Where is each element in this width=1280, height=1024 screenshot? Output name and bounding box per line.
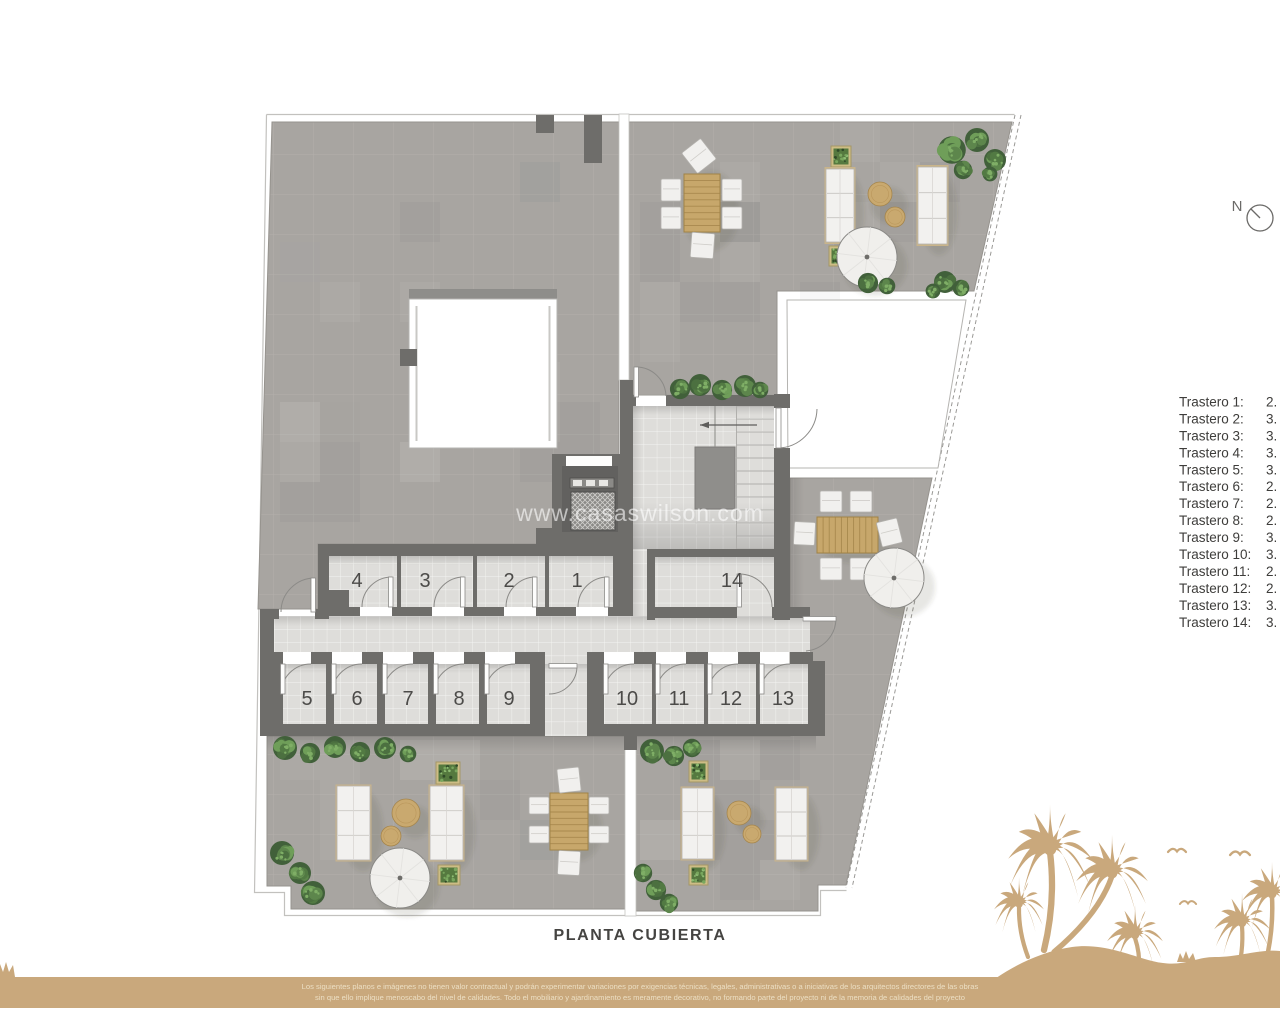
- svg-text:Trastero 5:: Trastero 5:: [1179, 462, 1244, 477]
- svg-text:Trastero 6:: Trastero 6:: [1179, 479, 1244, 494]
- svg-text:Trastero 14:: Trastero 14:: [1179, 615, 1251, 630]
- svg-text:www.casaswilson.com: www.casaswilson.com: [515, 500, 764, 526]
- svg-text:Trastero 9:: Trastero 9:: [1179, 530, 1244, 545]
- svg-text:5: 5: [301, 688, 312, 710]
- svg-text:3.: 3.: [1266, 615, 1277, 630]
- svg-text:6: 6: [351, 688, 362, 710]
- svg-text:Trastero 8:: Trastero 8:: [1179, 513, 1244, 528]
- svg-text:2.: 2.: [1266, 581, 1277, 596]
- svg-text:N: N: [1232, 198, 1243, 215]
- svg-text:8: 8: [453, 688, 464, 710]
- svg-text:7: 7: [402, 688, 413, 710]
- svg-text:12: 12: [720, 688, 742, 710]
- svg-text:Trastero 7:: Trastero 7:: [1179, 496, 1244, 511]
- svg-text:13: 13: [772, 688, 794, 710]
- svg-text:Trastero 11:: Trastero 11:: [1179, 564, 1250, 579]
- svg-text:Trastero 12:: Trastero 12:: [1179, 581, 1251, 596]
- svg-text:2.: 2.: [1266, 395, 1277, 410]
- svg-text:3.: 3.: [1266, 530, 1277, 545]
- svg-text:PLANTA CUBIERTA: PLANTA CUBIERTA: [553, 927, 726, 944]
- svg-text:2: 2: [503, 570, 514, 592]
- svg-text:3: 3: [419, 570, 430, 592]
- svg-text:2.: 2.: [1266, 564, 1277, 579]
- svg-text:3.: 3.: [1266, 598, 1277, 613]
- svg-text:4: 4: [351, 570, 362, 592]
- svg-text:Trastero 1:: Trastero 1:: [1179, 395, 1244, 410]
- svg-text:Trastero 4:: Trastero 4:: [1179, 445, 1244, 460]
- svg-text:2.: 2.: [1266, 496, 1277, 511]
- svg-text:3.: 3.: [1266, 411, 1277, 426]
- svg-text:10: 10: [616, 688, 638, 710]
- svg-text:2.: 2.: [1266, 513, 1277, 528]
- svg-text:Trastero 2:: Trastero 2:: [1179, 411, 1244, 426]
- svg-text:3.: 3.: [1266, 547, 1277, 562]
- svg-text:3.: 3.: [1266, 462, 1277, 477]
- svg-text:Trastero 13:: Trastero 13:: [1179, 598, 1251, 613]
- svg-text:9: 9: [503, 688, 514, 710]
- svg-text:3.: 3.: [1266, 428, 1277, 443]
- svg-text:14: 14: [721, 570, 743, 592]
- svg-text:Trastero 3:: Trastero 3:: [1179, 428, 1244, 443]
- svg-text:Los siguientes planos e imágen: Los siguientes planos e imágenes no tien…: [302, 982, 979, 991]
- svg-text:sin que ello implique menoscab: sin que ello implique menoscabo del nive…: [315, 993, 965, 1002]
- svg-text:2.: 2.: [1266, 479, 1277, 494]
- svg-text:11: 11: [669, 688, 690, 710]
- svg-text:Trastero 10:: Trastero 10:: [1179, 547, 1251, 562]
- svg-text:3.: 3.: [1266, 445, 1277, 460]
- svg-text:1: 1: [571, 570, 582, 592]
